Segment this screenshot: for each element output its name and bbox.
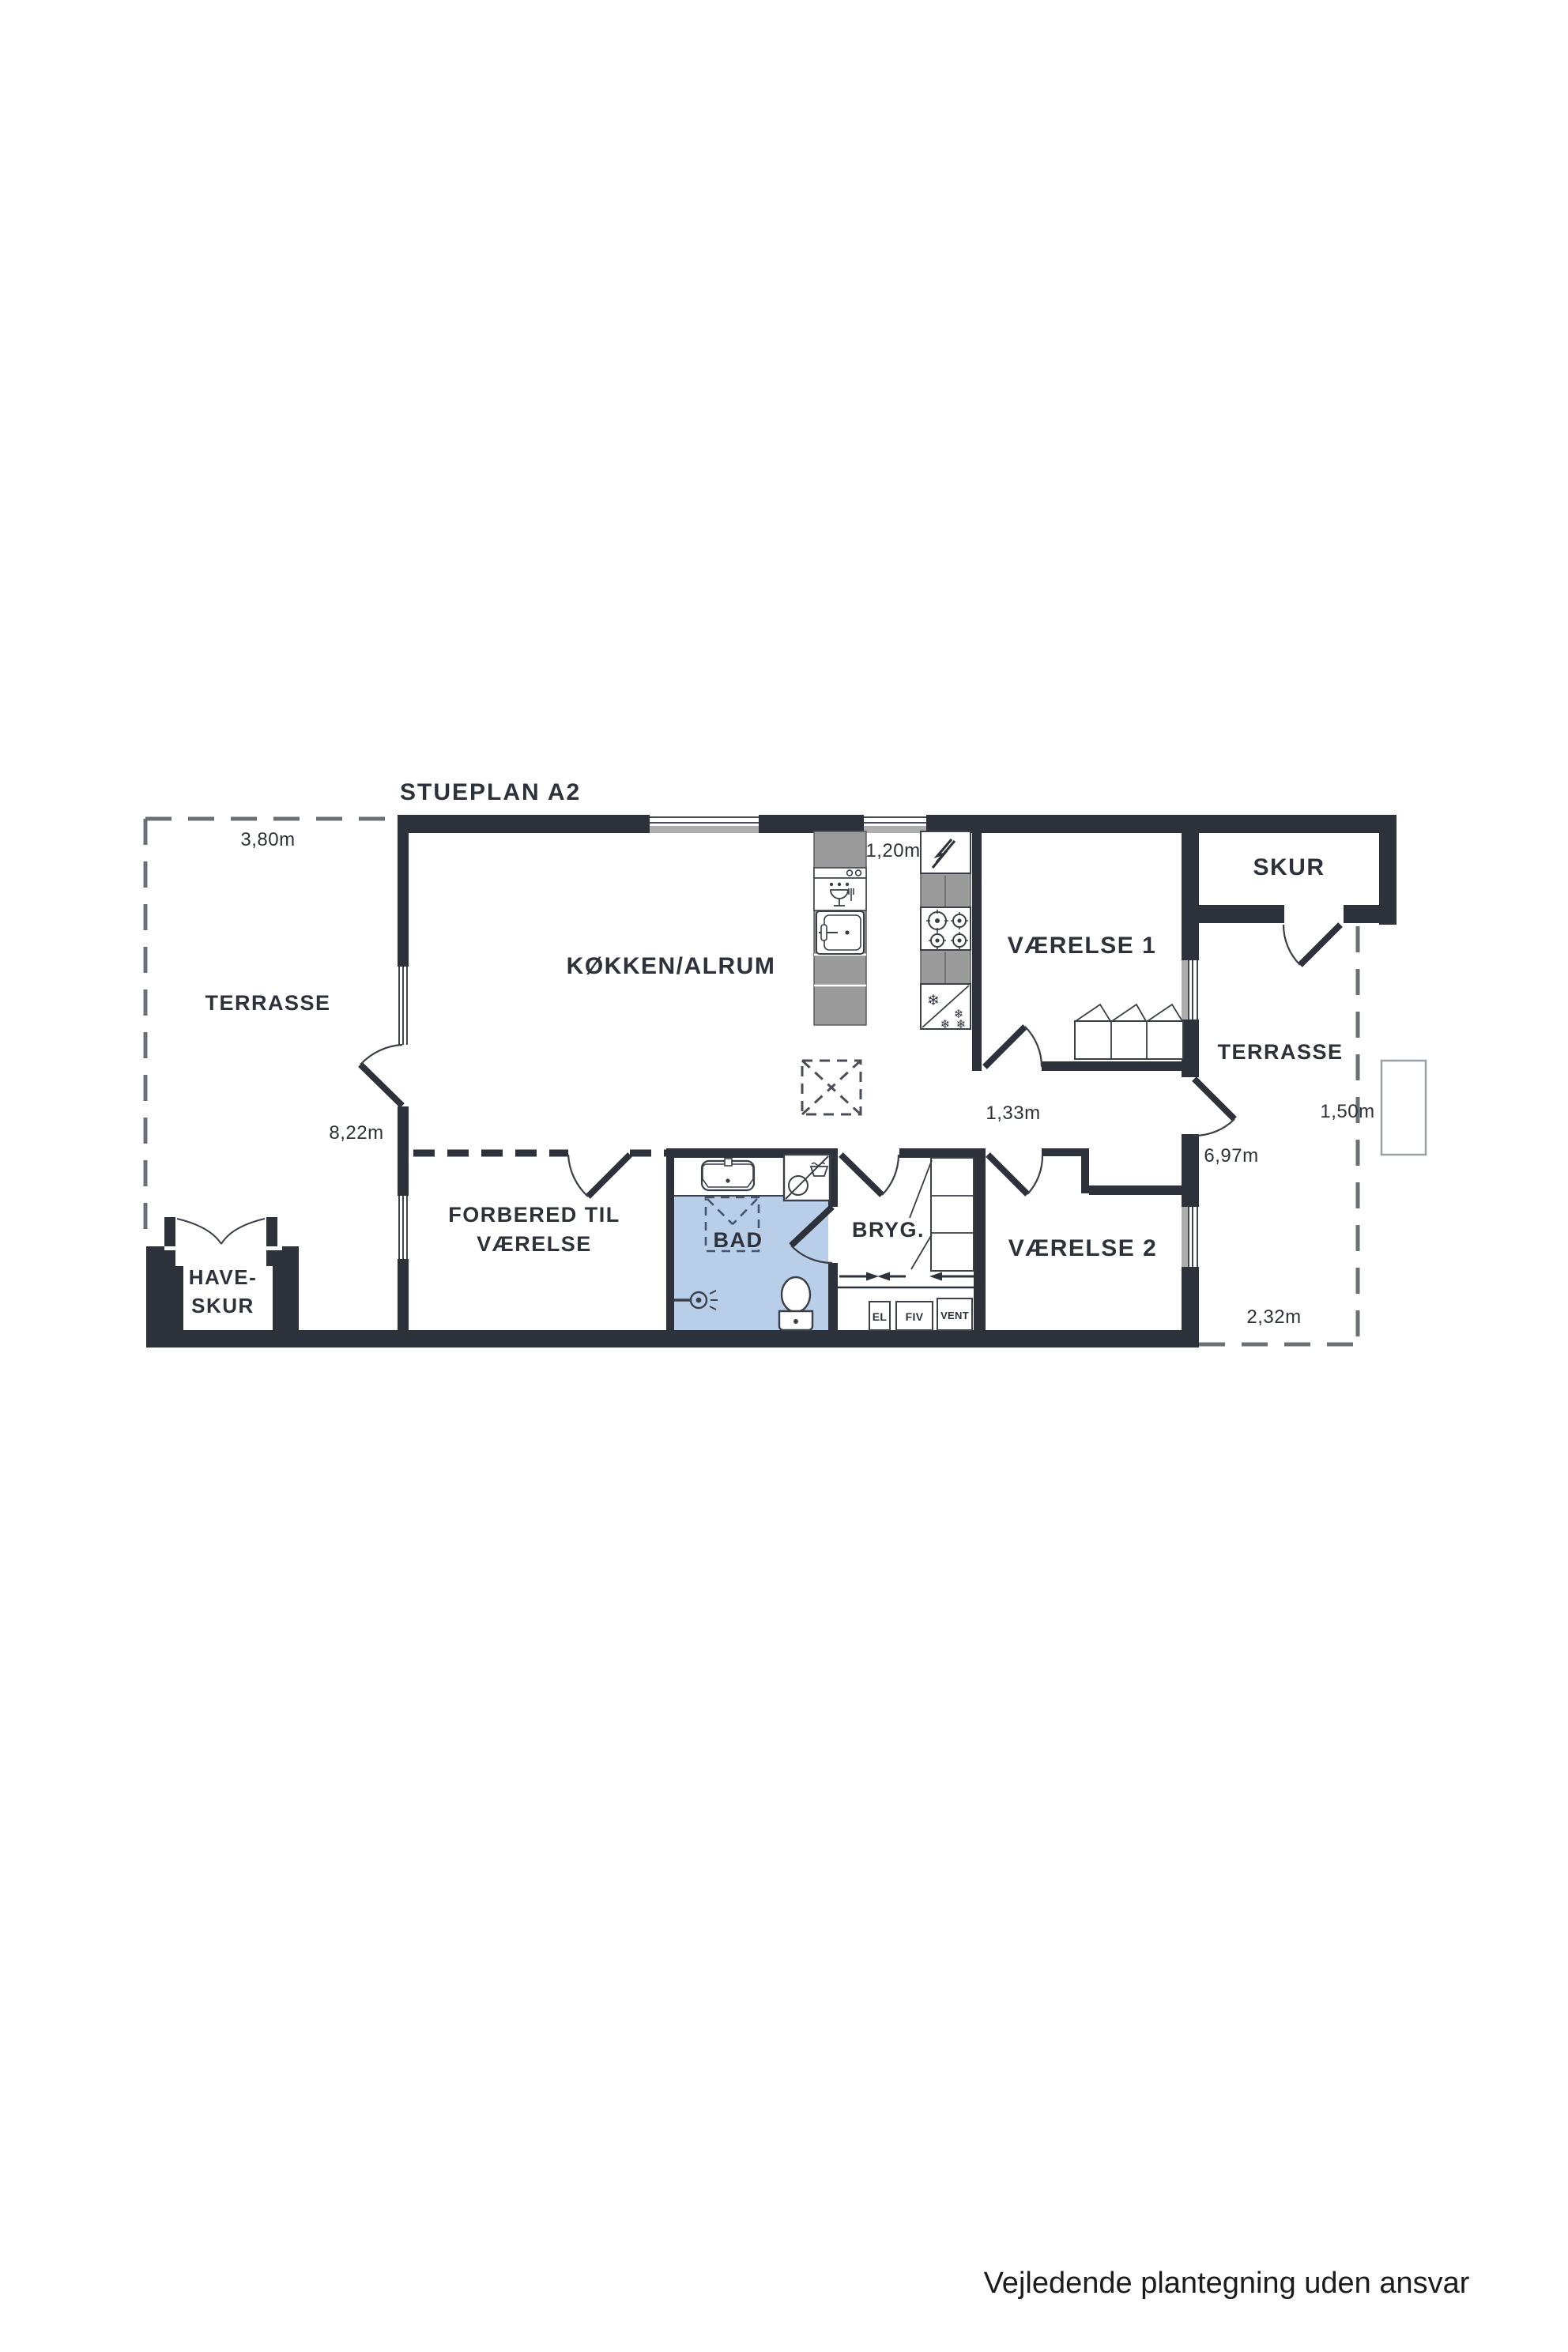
fiv-label: FIV [906, 1310, 924, 1323]
wall-haveskur-post-left [164, 1217, 175, 1246]
window-kitchen-top-2 [864, 815, 926, 833]
window-vaerelse1-right [1182, 960, 1199, 1020]
room-label-terrasse-left: TERRASSE [205, 991, 330, 1015]
wall-left-lower [398, 1259, 409, 1334]
wall-haveskur-post-right [266, 1217, 277, 1246]
wall-top-2 [759, 815, 864, 833]
dim-label-kitchen-aisle: 1,20m [865, 840, 920, 861]
dim-label-hallway: 1,33m [986, 1102, 1040, 1124]
kitchen-sink-icon [816, 911, 864, 954]
kitchen-appliance-column: ❄ ❄ ❄ ❄ [921, 831, 971, 1031]
outdoor-step [1381, 1061, 1426, 1155]
bryg-cabinet [910, 1158, 974, 1271]
wall-haveskur-lintel-right [266, 1250, 299, 1266]
door-forbered [568, 1155, 630, 1197]
electric-panel-icon [921, 831, 971, 873]
wardrobe-door-swings [1076, 1004, 1182, 1021]
svg-text:❄: ❄ [927, 992, 940, 1009]
bathroom-floor [674, 1196, 828, 1330]
wall-right-mid2 [1182, 1134, 1199, 1207]
room-label-bad: BAD [714, 1228, 763, 1252]
toilet-icon [779, 1277, 812, 1330]
disclaimer-text: Vejledende plantegning uden ansvar [984, 2267, 1470, 2300]
dim-label-back-strip: 2,32m [1246, 1306, 1301, 1328]
svg-text:❄: ❄ [956, 1017, 967, 1031]
room-label-kokken: KØKKEN/ALRUM [567, 953, 776, 979]
page-title: STUEPLAN A2 [400, 779, 581, 805]
door-skur [1283, 925, 1340, 965]
door-vaerelse1 [985, 1027, 1042, 1067]
wall-bad-right-lower [828, 1263, 838, 1330]
wall-v2-top [1042, 1148, 1083, 1156]
wall-bad-left [666, 1148, 674, 1330]
window-terrace-left [398, 967, 409, 1045]
room-label-haveskur-1: HAVE- [189, 1265, 257, 1289]
svg-text:❄: ❄ [940, 1017, 951, 1031]
el-label: EL [873, 1310, 888, 1323]
sliding-direction-arrows [836, 1272, 974, 1288]
fridge-freezer-icon: ❄ ❄ ❄ ❄ [921, 984, 971, 1031]
dim-label-house-side: 8,22m [329, 1122, 383, 1144]
room-label-skur: SKUR [1253, 854, 1325, 880]
room-label-forbered-1: FORBERED TIL [448, 1203, 620, 1227]
wall-entry-notch-v [1081, 1148, 1089, 1193]
room-label-terrasse-right: TERRASSE [1217, 1040, 1343, 1064]
bryggers: EL FIV VENT [836, 1158, 974, 1330]
vent-label: VENT [940, 1310, 969, 1321]
dim-label-right-side: 6,97m [1204, 1145, 1258, 1167]
skylight [802, 1061, 861, 1114]
wall-haveskur-lintel-left [146, 1250, 175, 1266]
dishwasher-icon [814, 878, 866, 910]
dim-label-right-terrace: 1,50m [1320, 1101, 1374, 1122]
wall-top-3 [926, 815, 1396, 833]
floor-plan-canvas: ❄ ❄ ❄ ❄ [0, 0, 1568, 2352]
wall-left-mid [398, 1106, 409, 1196]
window-kitchen-top [650, 815, 759, 833]
wall-bryg-top [899, 1148, 986, 1158]
window-vaerelse2-right [1182, 1207, 1199, 1267]
wall-haveskur-inner-left [164, 1266, 183, 1330]
door-terrace-left [360, 1045, 402, 1106]
kitchen-counter-left [814, 831, 866, 1025]
wall-bryg-right [974, 1148, 986, 1330]
door-haveskur-double [177, 1219, 265, 1244]
dim-label-terrace-width: 3,80m [240, 829, 295, 850]
wall-top-1 [398, 815, 650, 833]
sink-icon [702, 1159, 754, 1190]
wall-bottom [146, 1330, 1199, 1347]
wall-skur-bottom-left [1199, 905, 1284, 923]
wall-left-upper [398, 815, 409, 967]
faucet-strip-icon [814, 868, 866, 878]
wall-v1-bottom [1042, 1061, 1199, 1071]
kitchen: ❄ ❄ ❄ ❄ [802, 831, 971, 1114]
wall-skur-bottom-right [1344, 905, 1379, 923]
wall-right-lower [1182, 1267, 1199, 1347]
door-front-entry [1194, 1079, 1234, 1136]
window-forbered-left [398, 1196, 409, 1259]
door-vaerelse2 [988, 1155, 1042, 1194]
room-label-bryg: BRYG. [852, 1218, 925, 1242]
wall-entry-notch-h [1089, 1185, 1183, 1195]
room-label-forbered-2: VÆRELSE [477, 1232, 592, 1256]
wall-right-upper [1182, 815, 1199, 960]
wall-skur-right [1379, 815, 1396, 925]
cooktop-icon [921, 907, 971, 950]
page: { "title": "STUEPLAN A2", "footer": "Vej… [0, 0, 1568, 2352]
room-label-vaerelse1: VÆRELSE 1 [1008, 933, 1157, 959]
wardrobe-vaerelse1 [1075, 1004, 1183, 1059]
door-bryg [841, 1155, 899, 1195]
washing-machine-icon [784, 1155, 830, 1200]
wall-haveskur-inner-right [273, 1266, 291, 1330]
wall-kitchen-v1-divider [972, 833, 982, 1061]
room-label-haveskur-2: SKUR [191, 1294, 254, 1317]
wall-v1-bottom-stub [972, 1061, 982, 1071]
room-label-vaerelse2: VÆRELSE 2 [1008, 1235, 1158, 1261]
